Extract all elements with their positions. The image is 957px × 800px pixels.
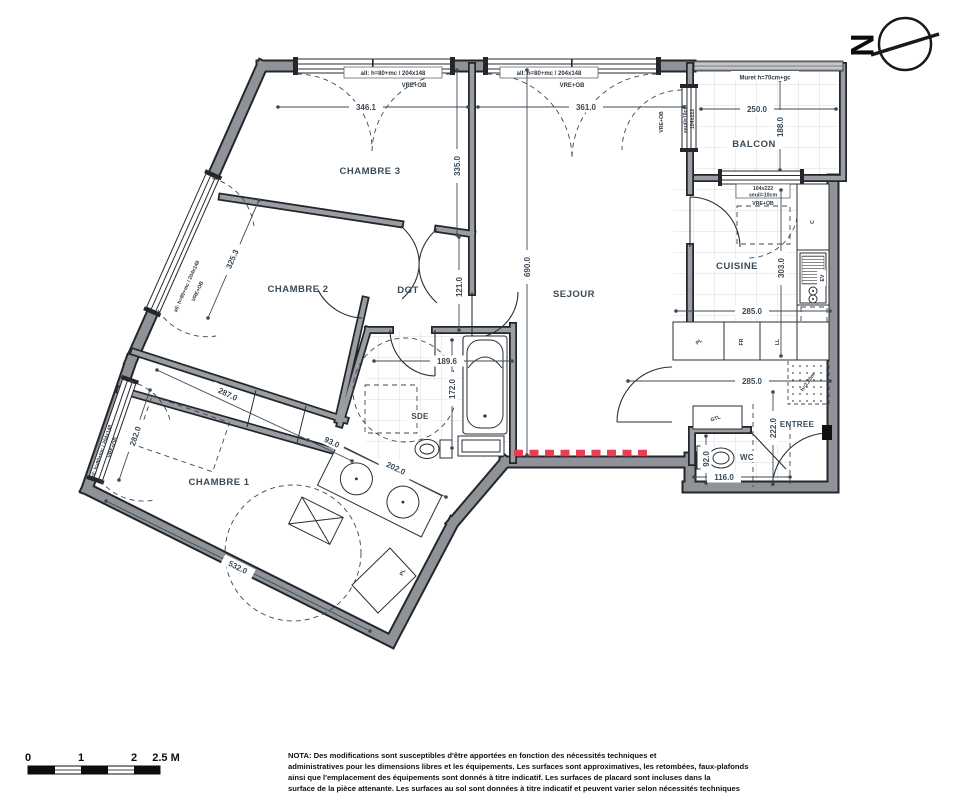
scale-tick-25: 2.5 M [152,752,180,764]
dim-label: 222.0 [769,417,778,438]
nota-line-2: administratives pour les dimensions libr… [288,761,793,772]
dim-label: 189.6 [437,357,458,366]
scale-bar: 0 1 2 2.5 M [25,752,180,774]
nota-text-block: NOTA: Des modifications sont susceptible… [288,750,793,794]
lower-cabinet-row: PL FR LL [673,322,829,360]
dim-label: 250.0 [747,105,768,114]
kitchen-ev-label: EV [820,274,826,281]
dim-label: 361.0 [576,103,597,112]
dim-label: 121.0 [455,276,464,297]
balcon-floor-tiles [697,72,837,176]
gtl-cabinet: GTL [693,406,742,429]
chambre3-window-vre: VRE+OB [402,83,428,89]
balcon-left-window-size: 104x222 [690,109,696,129]
room-label-sde: SDE [411,412,429,421]
entry-door-handle [822,425,832,440]
fridge-label: FR [739,338,745,345]
muret-label: Muret h=70cm+gc [739,76,791,82]
dim-label: 325.3 [224,248,240,270]
washer-label: LL [775,338,781,345]
dim-label: 285.0 [742,307,763,316]
nota-line-1: NOTA: Des modifications sont susceptible… [288,750,793,761]
north-arrow: N [844,18,939,70]
chambre2-window-vre: VRE+OB [191,280,205,302]
dim-label: 303.0 [777,257,786,278]
bathtub [463,336,507,434]
room-label-dgt: DGT [397,285,419,296]
muret-hatched-wall [694,61,843,71]
room-label-cuisine: CUISINE [716,261,758,272]
chambre3-window-spec: all: h=80+mc / 204x148 [361,71,426,77]
balcon-bottom-window-seuil: seuil=10cm [749,193,778,199]
dim-label: 346.1 [356,103,377,112]
dim-label: 282.0 [128,425,143,447]
scale-tick-2: 2 [131,752,137,764]
nota-line-3: ainsi que l'emplacement des équipements … [288,772,793,783]
room-label-wc: WC [740,453,754,462]
nota-line-4: surface de la pièce attenante. Les surfa… [288,783,793,794]
scale-tick-1: 1 [78,752,84,764]
room-label-sejour: SEJOUR [553,289,595,300]
floor-plan-drawing: all: h=80+mc / 204x148 VRE+OB all: h=80+… [0,0,957,800]
dim-label: 335.0 [453,155,462,176]
sde-toilet [415,440,452,459]
room-label-chambre2: CHAMBRE 2 [268,284,329,295]
dim-label: 172.0 [448,378,457,399]
scale-tick-0: 0 [25,752,31,764]
room-label-entree: ENTREE [780,420,815,429]
sejour-window-vre: VRE+OB [560,83,586,89]
dim-label: 116.0 [714,473,734,482]
chambre1-turning-circle [225,485,361,621]
balcon-left-window: seuil=10cm 104x222 VRE+OB [622,84,698,152]
floor-plan-page: all: h=80+mc / 204x148 VRE+OB all: h=80+… [0,0,957,800]
dim-label: 92.0 [702,451,711,467]
chambre1-shaft-box [289,497,344,544]
dim-label: 285.0 [742,377,763,386]
room-label-chambre1: CHAMBRE 1 [189,477,250,488]
chambre1-closet-label: PL [399,568,408,577]
balcon-bottom-window-size: 104x222 [753,186,773,192]
balcon-left-window-vre: VRE+OB [659,111,665,133]
north-letter: N [844,33,880,56]
kitchen-cabinet-c-label: C [810,220,816,224]
tiled-floors [366,72,837,485]
room-label-balcon: BALCON [732,139,776,150]
dim-label: 690.0 [523,256,532,277]
cuisine-lower-door [617,367,672,422]
room-label-chambre3: CHAMBRE 3 [340,166,401,177]
sejour-window-spec: all: h=80+mc / 204x148 [517,71,582,77]
balcon-left-window-seuil: seuil=10cm [683,105,689,134]
sde-washbasin [458,436,504,456]
dim-label: 188.0 [776,116,785,137]
